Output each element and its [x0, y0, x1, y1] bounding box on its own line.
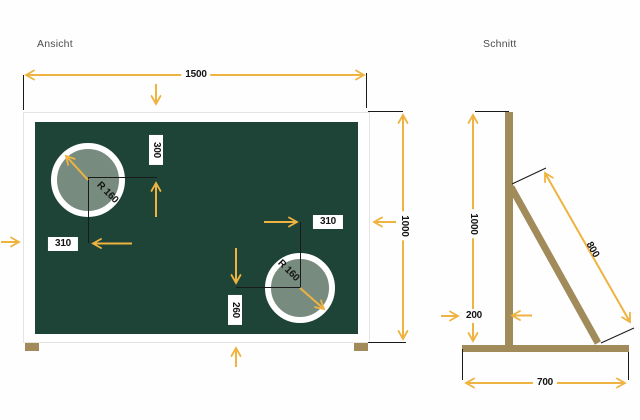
dim-label-300: 300: [149, 135, 163, 165]
section-base-plate: [462, 345, 629, 352]
view-title-ansicht: Ansicht: [37, 38, 73, 50]
ext-strut-top: [512, 168, 546, 184]
section-support-strut: [511, 187, 598, 343]
dim-label-260: 260: [228, 295, 242, 325]
view-title-schnitt: Schnitt: [483, 38, 517, 50]
ext-strut-bottom: [601, 328, 634, 343]
target-hole-upper-left: [51, 143, 125, 217]
board-foot-left: [25, 343, 39, 351]
dim-label-700: 700: [533, 376, 557, 390]
dim-label-800: 800: [583, 240, 601, 260]
dim-label-1000-ansicht: 1000: [397, 211, 411, 240]
dim-label-310-right: 310: [313, 215, 343, 229]
dim-label-1000-schnitt: 1000: [466, 209, 480, 238]
technical-drawing-canvas: Ansicht Schnitt: [0, 0, 640, 420]
dim-label-200: 200: [462, 309, 486, 323]
dim-label-310-left: 310: [48, 237, 78, 251]
board-foot-right: [354, 343, 368, 351]
dim-label-1500: 1500: [181, 68, 210, 82]
section-board-upright: [505, 112, 513, 345]
